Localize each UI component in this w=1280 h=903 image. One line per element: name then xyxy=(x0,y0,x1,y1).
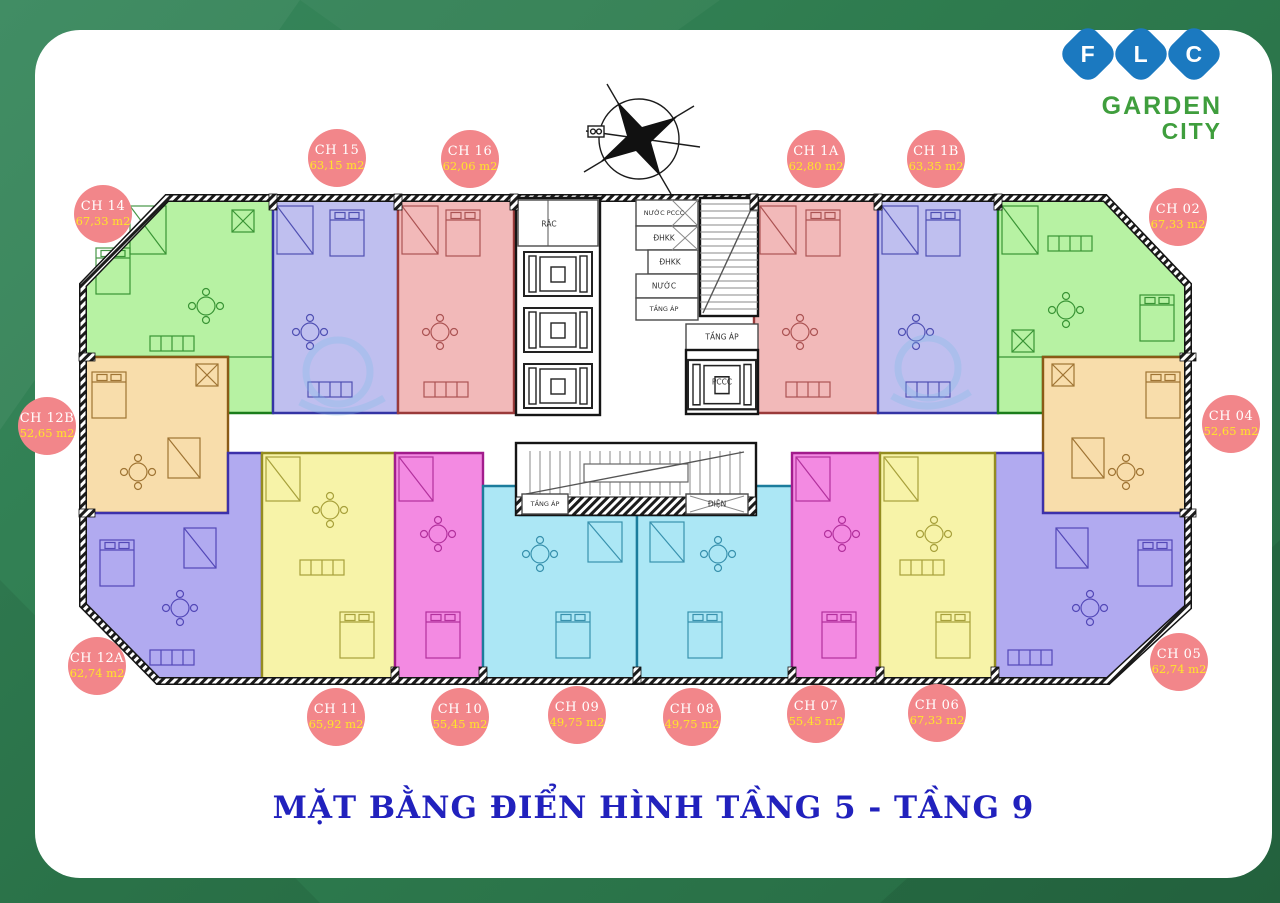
unit-badge-ch-15: CH 15 63,15 m2 xyxy=(308,129,366,187)
unit-id: CH 16 xyxy=(448,145,492,160)
unit-area-label: 65,92 m2 xyxy=(309,718,364,731)
core-label-nuoc-pccc: NƯỚC PCCC xyxy=(644,209,685,217)
unit-area-label: 67,33 m2 xyxy=(1151,218,1206,231)
core-label-dhkk-b: ĐHKK xyxy=(659,258,680,267)
page-title: MẶT BẰNG ĐIỂN HÌNH TẦNG 5 - TẦNG 9 xyxy=(35,790,1272,826)
unit-badge-ch-11: CH 11 65,92 m2 xyxy=(307,688,365,746)
core-label-tang-ap-c: TẦNG ÁP xyxy=(531,500,560,508)
core-label-rac: RÁC xyxy=(541,220,556,229)
flc-tile-f: F xyxy=(1057,23,1119,85)
unit-id: CH 12B xyxy=(20,412,75,427)
core-label-dhkk-a: ĐHKK xyxy=(653,234,674,243)
unit-area-ch-06 xyxy=(880,453,995,681)
unit-badge-ch-16: CH 16 62,06 m2 xyxy=(441,130,499,188)
logo-city-text: CITY xyxy=(1040,118,1222,145)
flc-tile-c: C xyxy=(1163,23,1225,85)
unit-id: CH 15 xyxy=(315,144,359,159)
unit-area-ch-15 xyxy=(273,198,398,413)
unit-badge-ch-12b: CH 12B 52,65 m2 xyxy=(18,397,76,455)
logo-garden-text: GARDEN xyxy=(1040,92,1222,121)
unit-id: CH 10 xyxy=(438,703,482,718)
unit-id: CH 02 xyxy=(1156,203,1200,218)
unit-area-ch-11 xyxy=(262,453,395,681)
unit-area-label: 49,75 m2 xyxy=(550,716,605,729)
unit-badge-ch-1b: CH 1B 63,35 m2 xyxy=(907,130,965,188)
unit-id: CH 04 xyxy=(1209,410,1253,425)
unit-badge-ch-06: CH 06 67,33 m2 xyxy=(908,684,966,742)
unit-area-label: 62,74 m2 xyxy=(70,667,125,680)
unit-area-ch-1a xyxy=(754,198,878,413)
flc-logo-tiles: F L C xyxy=(1040,22,1222,76)
unit-badge-ch-14: CH 14 67,33 m2 xyxy=(74,185,132,243)
unit-id: CH 08 xyxy=(670,703,714,718)
unit-area-ch-16 xyxy=(398,198,514,413)
unit-area-label: 67,33 m2 xyxy=(76,215,131,228)
unit-area-label: 67,33 m2 xyxy=(910,714,965,727)
unit-area-label: 52,65 m2 xyxy=(1204,425,1259,438)
unit-badge-ch-08: CH 08 49,75 m2 xyxy=(663,688,721,746)
unit-area-label: 55,45 m2 xyxy=(789,715,844,728)
unit-id: CH 1A xyxy=(793,145,839,160)
unit-area-label: 49,75 m2 xyxy=(665,718,720,731)
unit-id: CH 09 xyxy=(555,701,599,716)
unit-badge-ch-1a: CH 1A 62,80 m2 xyxy=(787,130,845,188)
unit-area-label: 63,15 m2 xyxy=(310,159,365,172)
core-label-nuoc: NƯỚC xyxy=(652,282,676,291)
unit-id: CH 05 xyxy=(1157,648,1201,663)
poster-background: F L C GARDEN CITY CH 14 67,33 m2 CH 15 6… xyxy=(0,0,1280,903)
unit-badge-ch-05: CH 05 62,74 m2 xyxy=(1150,633,1208,691)
unit-id: CH 14 xyxy=(81,200,125,215)
unit-badge-ch-02: CH 02 67,33 m2 xyxy=(1149,188,1207,246)
unit-id: CH 12A xyxy=(70,652,124,667)
unit-area-label: 62,06 m2 xyxy=(443,160,498,173)
unit-area-label: 62,74 m2 xyxy=(1152,663,1207,676)
unit-area-label: 63,35 m2 xyxy=(909,160,964,173)
flc-tile-l: L xyxy=(1110,23,1172,85)
flc-letter: C xyxy=(1186,41,1203,68)
unit-badge-ch-12a: CH 12A 62,74 m2 xyxy=(68,637,126,695)
unit-area-label: 55,45 m2 xyxy=(433,718,488,731)
unit-id: CH 11 xyxy=(314,703,358,718)
unit-area-ch-04 xyxy=(1043,357,1188,513)
unit-area-ch-10 xyxy=(395,453,483,681)
unit-id: CH 1B xyxy=(913,145,959,160)
flc-garden-city-logo: F L C GARDEN CITY xyxy=(1040,22,1222,145)
unit-id: CH 07 xyxy=(794,700,838,715)
core-label-tang-ap-b: TẦNG ÁP xyxy=(705,333,738,342)
unit-area-label: 52,65 m2 xyxy=(20,427,75,440)
unit-id: CH 06 xyxy=(915,699,959,714)
unit-area-ch-12b xyxy=(83,357,228,513)
flc-letter: L xyxy=(1134,41,1148,68)
compass-icon xyxy=(584,84,700,194)
unit-badge-ch-04: CH 04 52,65 m2 xyxy=(1202,395,1260,453)
unit-area-ch-07 xyxy=(792,453,880,681)
unit-badge-ch-07: CH 07 55,45 m2 xyxy=(787,685,845,743)
core-label-dien: ĐIỆN xyxy=(708,500,726,509)
unit-badge-ch-09: CH 09 49,75 m2 xyxy=(548,686,606,744)
unit-badge-ch-10: CH 10 55,45 m2 xyxy=(431,688,489,746)
core-label-tang-ap-a: TẦNG ÁP xyxy=(650,305,679,313)
unit-area-ch-1b xyxy=(878,198,998,413)
unit-area-label: 62,80 m2 xyxy=(789,160,844,173)
flc-letter: F xyxy=(1081,41,1095,68)
core-label-pccc: PCCC xyxy=(712,378,732,387)
